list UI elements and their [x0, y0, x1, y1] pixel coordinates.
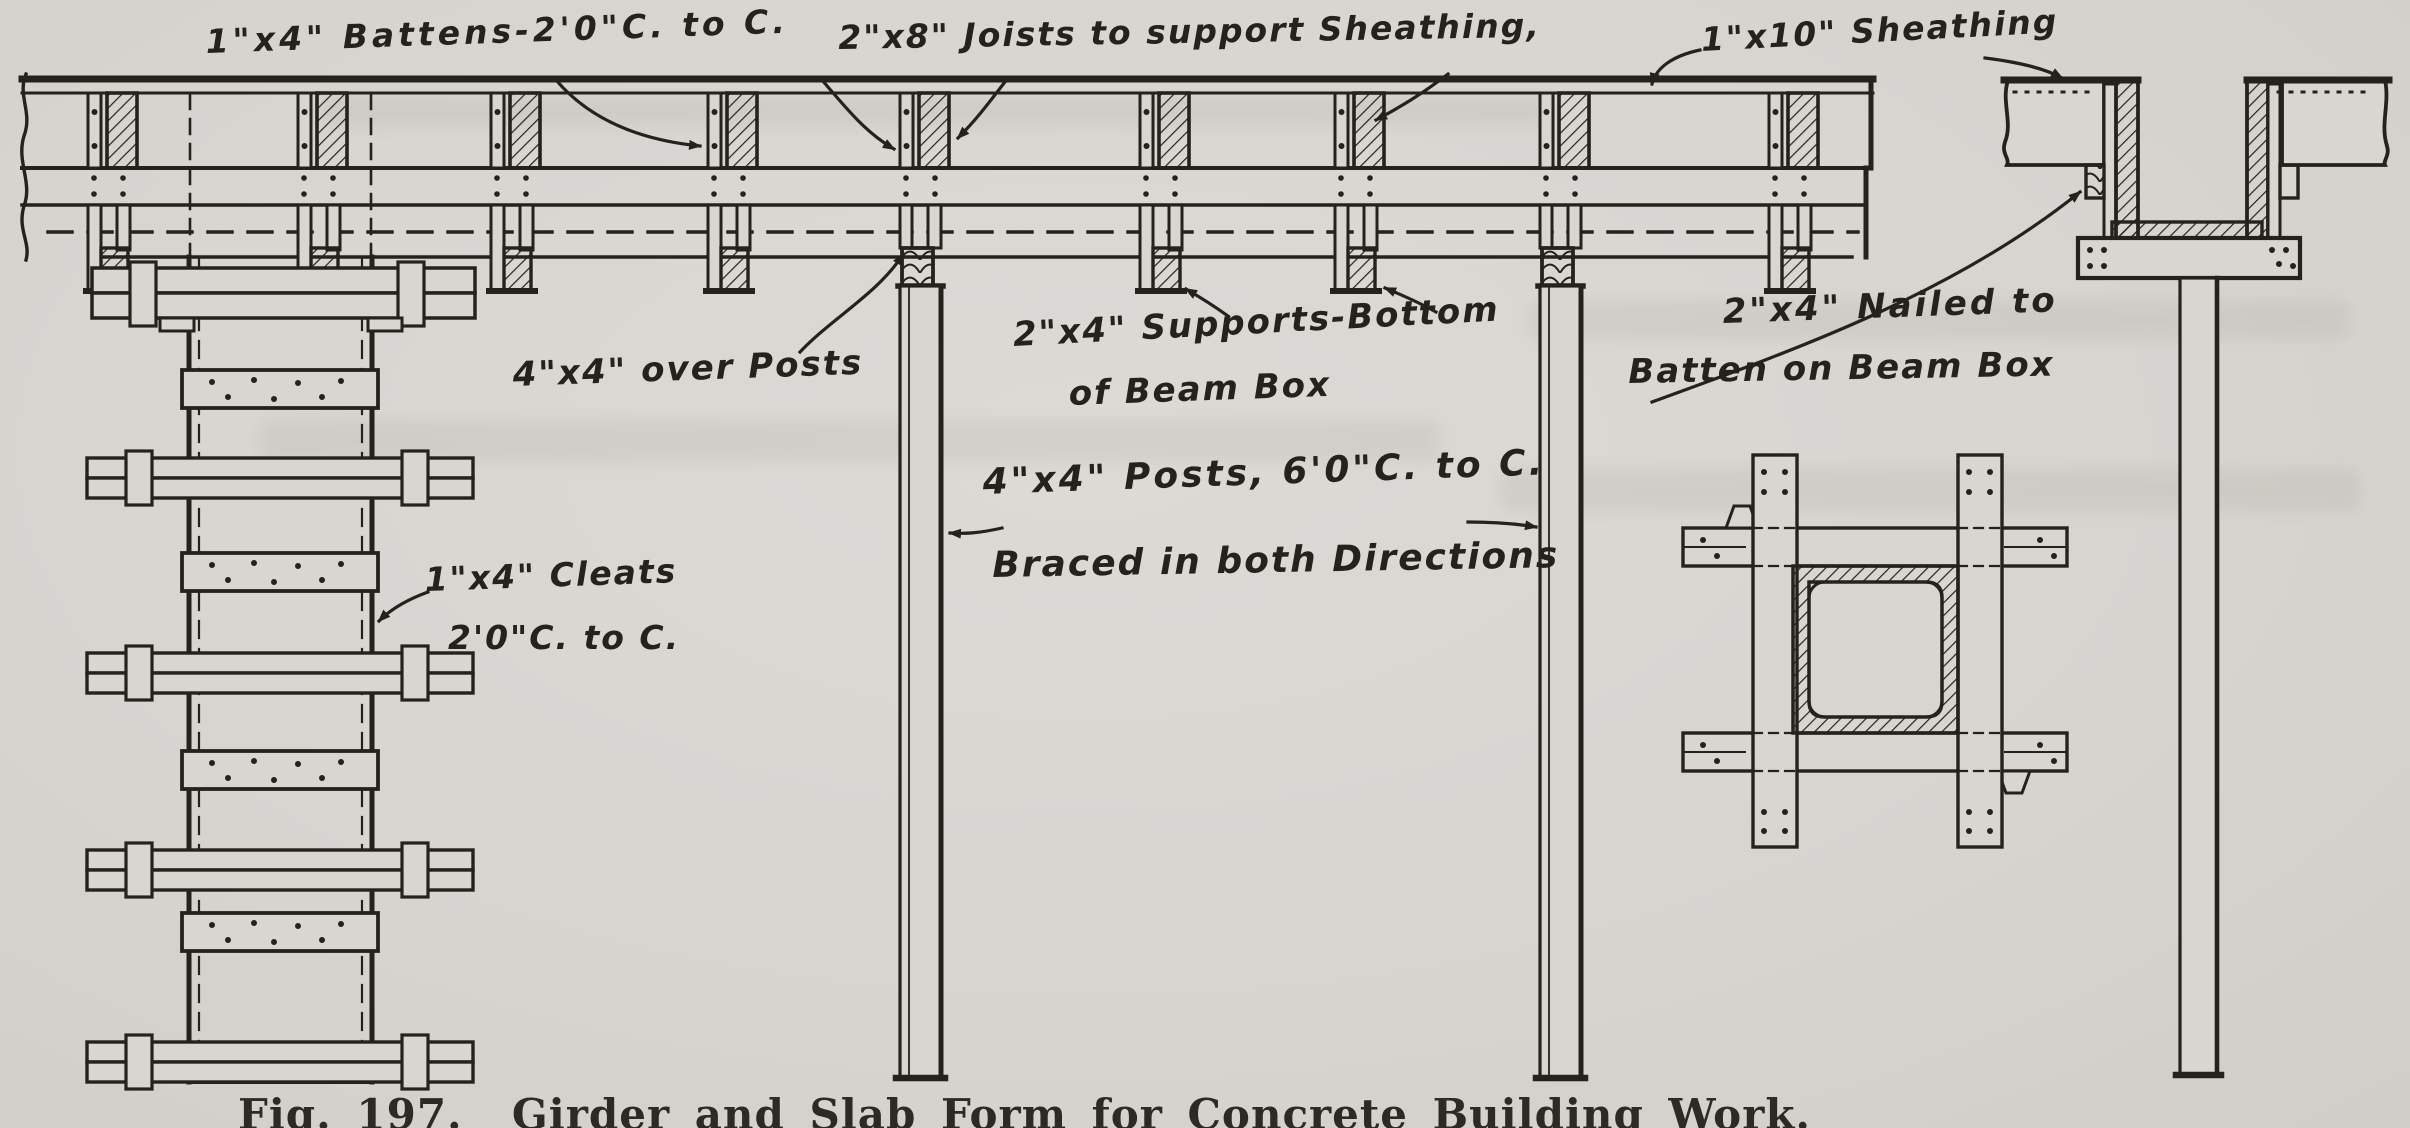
- label-nailed-line2: Batten on Beam Box: [1628, 345, 2055, 392]
- post-left: [896, 175, 945, 1078]
- post-right: [2180, 278, 2217, 1075]
- book-page: 1"x4" Battens-2'0"C. to C. 2"x8" Joists …: [0, 0, 2410, 1128]
- arrow-sheathing-right: [1985, 58, 2062, 78]
- arrow-battens-1: [556, 80, 700, 146]
- label-cleats-line2: 2'0"C. to C.: [448, 618, 680, 657]
- beam-box-cross-section: [2004, 80, 2389, 1075]
- arrow-battens-2: [822, 80, 894, 149]
- arrow-joists-1: [958, 78, 1008, 138]
- arrow-cleats: [379, 592, 428, 621]
- girder-column: [87, 257, 475, 1089]
- arrow-posts-right: [1468, 522, 1536, 527]
- post-middle: [1536, 175, 1585, 1078]
- column-head-clamp: [92, 262, 475, 331]
- arrow-posts-left: [950, 528, 1002, 533]
- beam-box-clamp-detail: [1683, 455, 2067, 847]
- figure-caption: Fig. 197. Girder and Slab Form for Concr…: [238, 1090, 1811, 1128]
- arrow-over-posts: [800, 254, 903, 352]
